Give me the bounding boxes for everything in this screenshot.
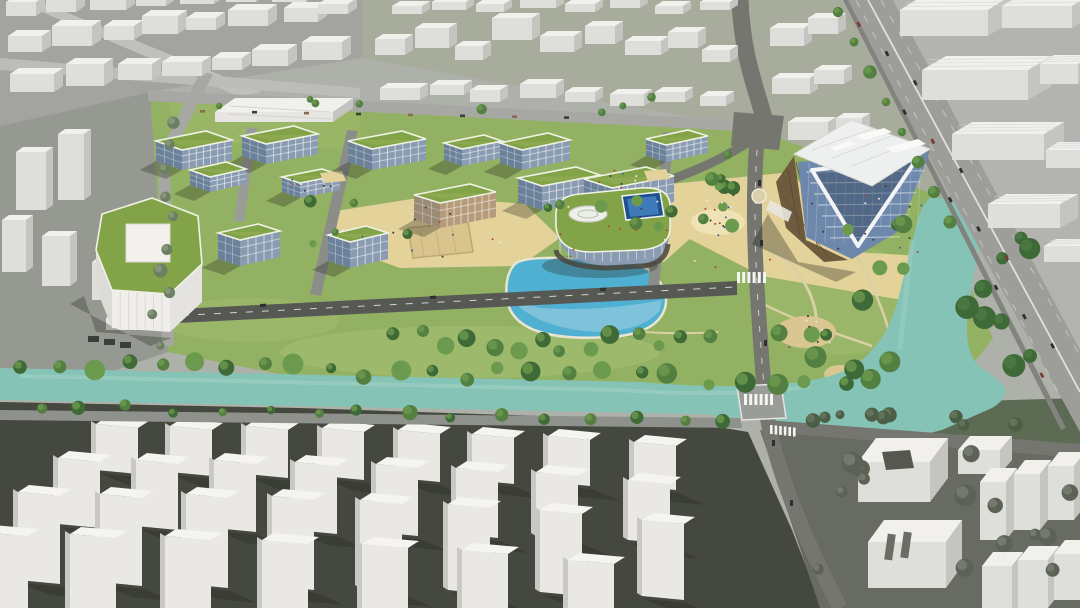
person-dot [622, 173, 624, 175]
tree-highlight [38, 404, 44, 410]
context-box-front [668, 32, 698, 48]
tree-highlight [895, 216, 905, 226]
crosswalk-stripe [760, 394, 763, 405]
tree-highlight [169, 409, 174, 414]
tree-highlight [1063, 486, 1072, 495]
person-dot [807, 315, 809, 317]
tree-highlight [154, 265, 162, 273]
person-dot [619, 228, 621, 230]
person-dot [694, 260, 696, 262]
crosswalk-stripe [775, 426, 778, 435]
tree-highlight [554, 346, 560, 352]
person-dot [710, 220, 712, 222]
tree-highlight [599, 109, 603, 113]
tree-highlight [631, 412, 638, 419]
person-dot [639, 216, 641, 218]
context-box-front [136, 0, 166, 6]
tree-highlight [216, 103, 220, 107]
tree-highlight [488, 340, 497, 349]
context-box-front [415, 28, 449, 48]
pavilion [752, 189, 766, 203]
tree-highlight [634, 328, 641, 335]
crosswalk-stripe [747, 272, 750, 283]
tree-highlight [727, 182, 735, 190]
crosswalk-stripe [770, 394, 773, 405]
tree-highlight [158, 359, 165, 366]
slab-front [165, 536, 211, 608]
context-box-front [520, 84, 556, 98]
car [764, 340, 767, 346]
tree-highlight [327, 364, 333, 370]
tree-highlight [594, 362, 604, 372]
slab-front [362, 544, 408, 608]
person-dot [559, 233, 561, 235]
context-box-front [1018, 560, 1048, 608]
tree-highlight [866, 409, 874, 417]
tree-highlight [351, 405, 357, 411]
slab-front [462, 550, 508, 608]
person-dot [722, 225, 724, 227]
slab-side [357, 541, 362, 608]
car [790, 500, 793, 506]
context-box-front [814, 70, 844, 84]
context-box-front [90, 0, 126, 10]
tree-highlight [387, 328, 394, 335]
tree-highlight [820, 412, 826, 418]
person-dot [613, 170, 615, 172]
context-box-front [1014, 474, 1040, 530]
parked-car [304, 112, 309, 115]
context-box-front [380, 88, 420, 100]
parked-car [252, 111, 257, 114]
tree-highlight [850, 38, 855, 43]
tree-highlight [492, 363, 499, 370]
person-dot [837, 248, 839, 250]
context-box-front [492, 18, 532, 40]
tree-highlight [496, 409, 503, 416]
person-dot [635, 229, 637, 231]
tree-highlight [544, 204, 549, 209]
person-dot [634, 180, 636, 182]
tree-highlight [705, 330, 713, 338]
slab-side [623, 477, 628, 540]
context-box-front [58, 134, 84, 200]
tree-highlight [957, 297, 970, 310]
context-box-front [6, 2, 36, 16]
context-box-front [700, 2, 730, 10]
context-box-front [610, 0, 640, 8]
tree-highlight [459, 331, 469, 341]
tree-highlight [585, 343, 593, 351]
tree-highlight [219, 409, 224, 414]
person-dot [609, 175, 611, 177]
person-dot [665, 229, 667, 231]
person-dot [817, 341, 819, 343]
tree-highlight [536, 333, 545, 342]
truck [104, 339, 115, 345]
context-box-front [772, 78, 810, 94]
person-dot [717, 234, 719, 236]
context-box-front [272, 0, 306, 2]
tree-highlight [630, 218, 637, 225]
slab-side [257, 537, 262, 608]
context-box-front [284, 8, 318, 22]
tree-highlight [165, 140, 170, 145]
person-dot [499, 241, 501, 243]
tree-highlight [675, 331, 682, 338]
context-box-front [42, 236, 70, 286]
person-dot [656, 201, 658, 203]
tree-highlight [1004, 356, 1017, 369]
person-dot [621, 183, 623, 185]
tree-highlight [14, 361, 21, 368]
context-box-front [318, 4, 348, 14]
context-box-front [186, 18, 216, 30]
tree-highlight [72, 402, 80, 410]
tree-highlight [726, 220, 734, 228]
context-box-front [252, 50, 288, 66]
tree-highlight [1021, 240, 1033, 252]
slab-front [642, 520, 684, 600]
parked-car [460, 115, 465, 118]
person-dot [864, 202, 866, 204]
car [758, 180, 761, 186]
tree-highlight [403, 230, 409, 236]
tree-highlight [882, 98, 887, 103]
tree-highlight [160, 164, 166, 170]
context-box-front [1040, 64, 1078, 84]
context-box-front [228, 10, 268, 26]
crosswalk-stripe [754, 394, 757, 405]
tree-highlight [267, 407, 272, 412]
context-box-front [655, 6, 683, 14]
car [430, 296, 436, 299]
tree-highlight [1024, 350, 1032, 358]
tree-highlight [724, 151, 729, 156]
slab-side [535, 507, 540, 592]
tree-highlight [393, 362, 404, 373]
tree-highlight [834, 8, 840, 14]
context-box-front [470, 90, 500, 102]
tree-highlight [1009, 418, 1017, 426]
tree-highlight [769, 375, 781, 387]
tree-highlight [699, 214, 705, 220]
slab-front [262, 540, 308, 608]
person-dot [452, 234, 454, 236]
person-dot [719, 222, 721, 224]
context-box-front [922, 70, 1028, 100]
context-box-front [392, 6, 422, 14]
person-dot [492, 238, 494, 240]
tree-highlight [124, 355, 132, 363]
tree-highlight [522, 363, 533, 374]
tree-highlight [1040, 528, 1050, 538]
context-box-top [10, 68, 63, 74]
tree-highlight [654, 222, 659, 227]
tree-highlight [563, 367, 571, 375]
context-box-front [952, 134, 1044, 160]
person-dot [730, 206, 732, 208]
parked-car [408, 114, 413, 117]
person-dot [864, 233, 866, 235]
tree-highlight [1030, 529, 1037, 536]
tree-highlight [404, 406, 412, 414]
person-dot [822, 231, 824, 233]
context-box-side [70, 231, 77, 286]
context-box-front [455, 46, 483, 60]
tree-highlight [556, 200, 561, 205]
person-dot [806, 320, 808, 322]
tree-highlight [539, 414, 545, 420]
context-box-front [226, 0, 256, 2]
context-box-front [610, 94, 644, 106]
tree-highlight [312, 100, 316, 104]
tree-highlight [806, 348, 818, 360]
slab-front [70, 534, 116, 608]
person-dot [572, 249, 574, 251]
tree-highlight [305, 196, 312, 203]
tree-highlight [873, 261, 881, 269]
tree-highlight [632, 196, 638, 202]
tree-highlight [148, 310, 153, 315]
context-box-top [772, 73, 818, 78]
tree-highlight [681, 416, 687, 422]
tree-highlight [310, 241, 314, 245]
tree-highlight [807, 414, 815, 422]
person-dot [725, 216, 727, 218]
crosswalk-stripe [753, 272, 756, 283]
person-dot [598, 181, 600, 183]
tree-highlight [187, 354, 197, 364]
person-dot [411, 250, 413, 252]
tree-highlight [836, 411, 841, 416]
person-dot [442, 256, 444, 258]
person-dot [439, 221, 441, 223]
context-box-front [375, 39, 405, 55]
tree-highlight [997, 253, 1004, 260]
context-box-front [8, 36, 42, 52]
context-box-front [430, 85, 464, 95]
person-dot [361, 236, 363, 238]
car [772, 440, 775, 446]
tree-highlight [165, 288, 171, 294]
tree-highlight [997, 536, 1006, 545]
context-box-side [26, 215, 33, 272]
context-box-top [868, 520, 962, 542]
person-dot [567, 206, 569, 208]
person-dot [808, 326, 810, 328]
person-dot [620, 187, 622, 189]
person-dot [728, 206, 730, 208]
person-dot [300, 183, 302, 185]
tree-highlight [356, 101, 360, 105]
tree-highlight [989, 499, 997, 507]
person-dot [829, 341, 831, 343]
tree-highlight [929, 187, 936, 194]
tree-highlight [477, 105, 483, 111]
roof-terrace [644, 169, 670, 181]
context-box-front [104, 26, 134, 40]
context-box-front [476, 4, 504, 12]
parked-car [512, 115, 517, 118]
tree-highlight [120, 400, 126, 406]
slab-side [457, 547, 462, 608]
tree-highlight [637, 367, 644, 374]
tree-highlight [798, 376, 805, 383]
tree-highlight [864, 66, 871, 73]
person-dot [425, 206, 427, 208]
person-dot [562, 202, 564, 204]
person-dot [885, 185, 887, 187]
crosswalk-stripe [742, 272, 745, 283]
person-dot [330, 185, 332, 187]
context-box-side [84, 129, 91, 200]
tree-highlight [357, 370, 366, 379]
roof-skylight [126, 224, 170, 262]
context-box-front [982, 566, 1012, 608]
tree-highlight [54, 361, 61, 368]
parked-car [356, 113, 361, 116]
person-dot [664, 239, 666, 241]
crosswalk-stripe [758, 272, 761, 283]
context-box-front [540, 36, 574, 52]
crosswalk-stripe [737, 272, 740, 283]
person-dot [392, 232, 394, 234]
person-dot [635, 175, 637, 177]
person-dot [769, 259, 771, 261]
car [600, 288, 606, 291]
tree-highlight [837, 487, 844, 494]
person-dot [811, 202, 813, 204]
tree-highlight [446, 414, 451, 419]
tree-highlight [959, 420, 965, 426]
context-box-front [1046, 150, 1080, 168]
tree-highlight [350, 199, 355, 204]
tree-highlight [438, 338, 448, 348]
crosswalk-stripe [770, 425, 773, 434]
context-box-front [625, 41, 661, 55]
context-box-front [212, 58, 242, 70]
tree-highlight [964, 446, 973, 455]
person-dot [704, 208, 706, 210]
tree-highlight [813, 564, 819, 570]
context-box-front [162, 62, 202, 76]
person-dot [899, 247, 901, 249]
person-dot [732, 194, 734, 196]
person-dot [788, 346, 790, 348]
context-box-front [565, 4, 595, 12]
person-dot [714, 223, 716, 225]
courtyard-void [882, 450, 914, 470]
slab-side [65, 531, 70, 608]
tree-highlight [846, 361, 857, 372]
aerial-render-image [0, 0, 1080, 608]
crosswalk-stripe [749, 394, 752, 405]
person-dot [357, 244, 359, 246]
tree-highlight [596, 201, 603, 208]
tree-highlight [86, 361, 97, 372]
person-dot [722, 228, 724, 230]
person-dot [909, 237, 911, 239]
crosswalk-stripe [744, 394, 747, 405]
context-box-front [770, 28, 804, 46]
person-dot [304, 190, 306, 192]
person-dot [291, 179, 293, 181]
tree-highlight [843, 225, 849, 231]
slab-front [568, 560, 614, 608]
person-dot [909, 206, 911, 208]
person-dot [414, 218, 416, 220]
tree-highlight [602, 327, 612, 337]
tree-highlight [859, 474, 865, 480]
context-box-front [1044, 246, 1080, 262]
tree-highlight [260, 358, 267, 365]
masterplan-scene [0, 0, 1080, 608]
tree-highlight [620, 103, 624, 107]
context-box-front [215, 112, 333, 122]
context-box-front [432, 2, 466, 10]
tree-highlight [307, 97, 311, 101]
person-dot [878, 198, 880, 200]
tree-highlight [843, 453, 855, 465]
person-dot [323, 185, 325, 187]
context-box-front [655, 92, 685, 102]
context-box-front [180, 0, 214, 4]
tree-highlight [772, 326, 781, 335]
tree-highlight [898, 263, 905, 270]
crosswalk-stripe [784, 427, 787, 436]
tree-highlight [316, 410, 321, 415]
context-box-top [380, 83, 428, 88]
tree-highlight [704, 380, 710, 386]
context-box-front [702, 50, 730, 62]
context-box-front [900, 10, 988, 36]
context-box-front [565, 92, 595, 102]
context-box-top [788, 117, 836, 122]
person-dot [640, 208, 642, 210]
tree-highlight [658, 365, 669, 376]
tree-highlight [975, 281, 985, 291]
tree-highlight [418, 326, 425, 333]
tree-highlight [284, 355, 296, 367]
truck [88, 336, 99, 342]
slab-side [563, 557, 568, 608]
person-dot [920, 205, 922, 207]
slab-side [637, 517, 642, 596]
context-box-front [142, 16, 178, 34]
context-box-front [66, 64, 104, 86]
crosswalk-stripe [788, 427, 791, 436]
tree-highlight [332, 229, 336, 233]
person-dot [608, 225, 610, 227]
context-box-front [585, 26, 615, 44]
crosswalk-stripe [793, 428, 796, 437]
tree-highlight [161, 192, 167, 198]
tree-highlight [881, 353, 893, 365]
context-box-front [520, 0, 556, 8]
context-box-top [215, 98, 353, 112]
tree-highlight [512, 343, 522, 353]
parked-car [564, 116, 569, 119]
person-dot [706, 199, 708, 201]
tree-highlight [913, 157, 920, 164]
tree-highlight [853, 291, 865, 303]
context-box-front [10, 74, 54, 92]
person-dot [865, 194, 867, 196]
person-dot [449, 213, 451, 215]
crosswalk-stripe [763, 272, 766, 283]
tree-highlight [162, 245, 168, 251]
